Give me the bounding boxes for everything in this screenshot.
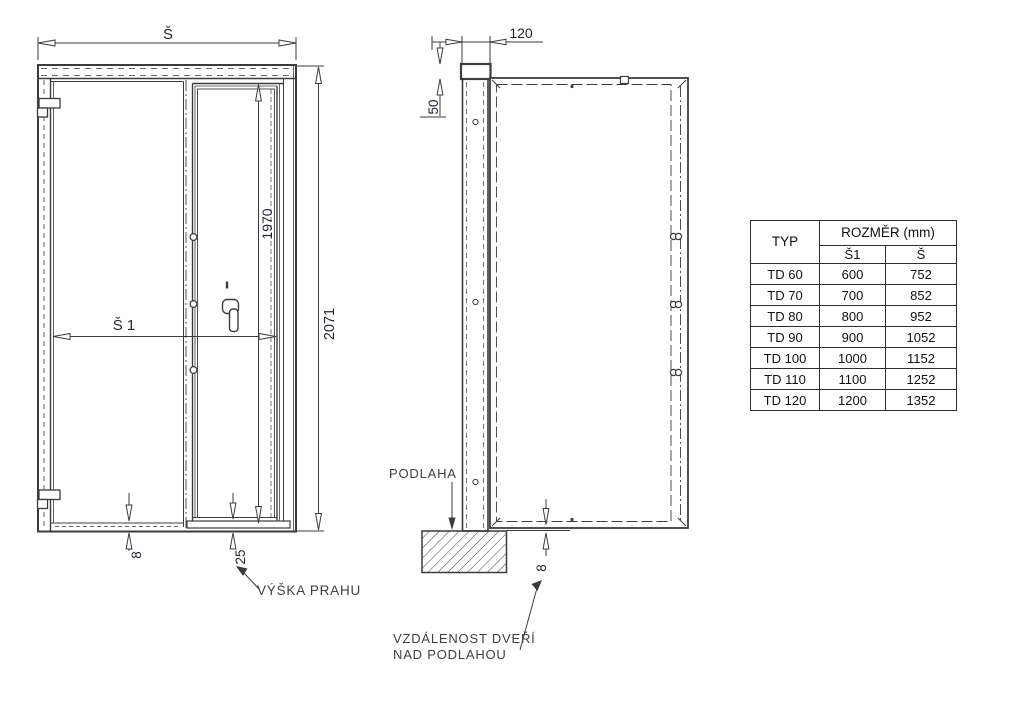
floor-label: PODLAHA	[389, 466, 457, 530]
dim-floor-gap-text: 8	[534, 564, 549, 572]
floor-gap-note-line1: VZDÁLENOST DVEŘÍ	[393, 631, 536, 646]
secondary-door-leaf	[187, 79, 290, 529]
cell-s1: 800	[820, 306, 886, 327]
cell-s1: 1200	[820, 390, 886, 411]
cell-s1: 600	[820, 264, 886, 285]
table-row: TD 110 1100 1252	[751, 369, 957, 390]
cell-s: 1352	[886, 390, 957, 411]
cell-s1: 1100	[820, 369, 886, 390]
table-row: TD 60 600 752	[751, 264, 957, 285]
header-type: TYP	[751, 221, 820, 264]
dim-width-s: Š	[38, 26, 296, 60]
dim-total-height-2071: 2071	[296, 66, 338, 531]
floor-gap-note-line2: NAD PODLAHOU	[393, 647, 507, 662]
front-view-drawing: Š	[38, 26, 362, 598]
dim-frame-depth-text: 120	[509, 25, 533, 41]
door-leaf-section	[490, 77, 688, 529]
header-s1: Š1	[820, 246, 886, 264]
top-edge-detail	[621, 77, 629, 84]
cell-s: 1152	[886, 348, 957, 369]
dim-leaf-height-text: 1970	[259, 208, 275, 239]
cell-s1: 1000	[820, 348, 886, 369]
cell-type: TD 80	[751, 306, 820, 327]
table-row: TD 90 900 1052	[751, 327, 957, 348]
table-row: TD 70 700 852	[751, 285, 957, 306]
cell-type: TD 120	[751, 390, 820, 411]
cell-s: 1252	[886, 369, 957, 390]
table-header-row: TYP ROZMĚR (mm)	[751, 221, 957, 246]
dim-top-offset-50: 50	[420, 42, 446, 117]
dim-clear-width-s1-text: Š 1	[113, 317, 136, 334]
cell-s: 1052	[886, 327, 957, 348]
side-view-drawing: 120 50	[389, 25, 688, 662]
cell-type: TD 60	[751, 264, 820, 285]
frame-post	[461, 64, 491, 531]
cell-s: 752	[886, 264, 957, 285]
dim-total-height-text: 2071	[322, 308, 338, 340]
floor-label-text: PODLAHA	[389, 466, 457, 481]
header-s: Š	[886, 246, 957, 264]
cell-type: TD 90	[751, 327, 820, 348]
frame-post-cap	[461, 64, 491, 79]
cell-type: TD 110	[751, 369, 820, 390]
cell-s1: 700	[820, 285, 886, 306]
dim-top-offset-text: 50	[426, 99, 441, 114]
table-row: TD 80 800 952	[751, 306, 957, 327]
size-table: TYP ROZMĚR (mm) Š1 Š TD 60 600 752 TD 70…	[750, 220, 957, 411]
floor-gap-note: VZDÁLENOST DVEŘÍ NAD PODLAHOU	[393, 580, 542, 662]
door-technical-drawing-page: Š	[0, 0, 1021, 720]
cell-type: TD 100	[751, 348, 820, 369]
threshold-note-text: VÝŠKA PRAHU	[257, 583, 361, 598]
threshold	[187, 521, 290, 528]
table-row: TD 100 1000 1152	[751, 348, 957, 369]
threshold-note: VÝŠKA PRAHU	[236, 566, 361, 598]
dim-threshold-text: 25	[233, 549, 248, 564]
header-dimension: ROZMĚR (mm)	[820, 221, 957, 246]
cell-s: 952	[886, 306, 957, 327]
cell-s1: 900	[820, 327, 886, 348]
dim-width-s-text: Š	[163, 26, 173, 43]
cell-type: TD 70	[751, 285, 820, 306]
cell-s: 852	[886, 285, 957, 306]
dim-bottom-gap-text: 8	[129, 551, 144, 559]
table-row: TD 120 1200 1352	[751, 390, 957, 411]
